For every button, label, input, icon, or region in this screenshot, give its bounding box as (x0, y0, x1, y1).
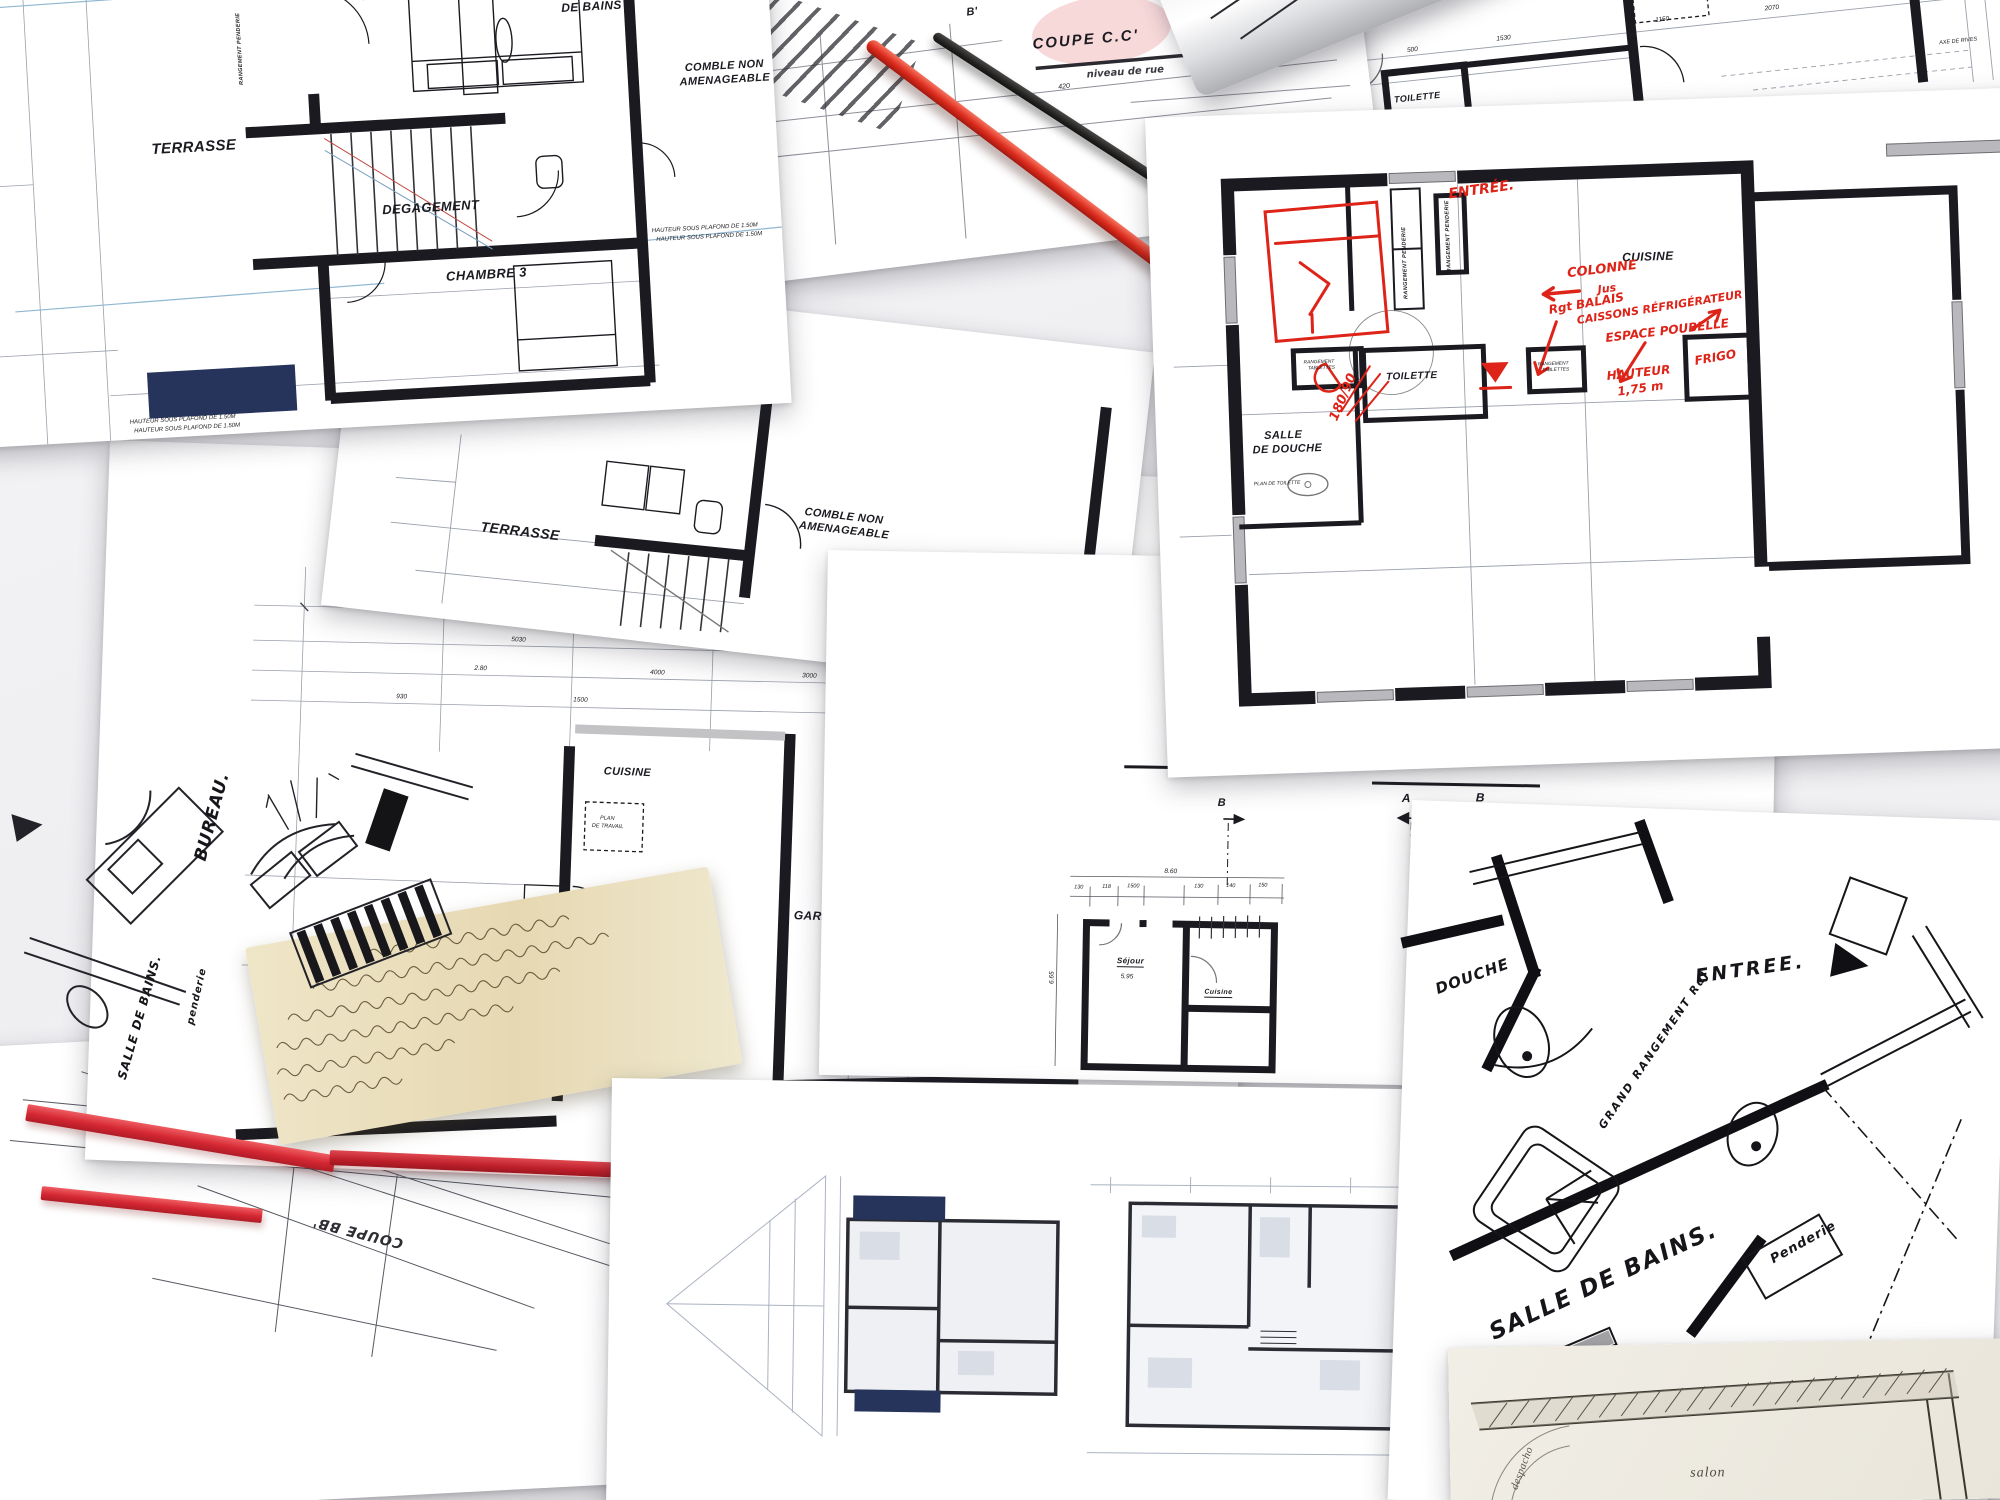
dim-420: 420 (1058, 83, 1071, 92)
coupe-dim-5: 150 (1258, 883, 1267, 889)
sheet-mini-plans (606, 1078, 1442, 1500)
dim-4000: 4000 (650, 669, 665, 677)
dim-1530-tr: 1530 (1496, 34, 1511, 43)
dim-3000: 3000 (802, 672, 817, 680)
dim-2070-tr: 2070 (1764, 4, 1779, 13)
coupe-dim-3: 130 (1194, 883, 1203, 889)
room-cuisine: CUISINE (604, 765, 652, 779)
room-toilette-red: TOILETTE (1386, 370, 1438, 383)
rgt-tablettes-a2: TABLETTES (1308, 366, 1335, 372)
coupe-dim-4: 140 (1226, 883, 1235, 889)
sheet-salon-old: salon despacho (1448, 1338, 2000, 1500)
sketch-stairs (290, 879, 451, 987)
dim-5030: 5030 (511, 636, 526, 644)
sheet-plan-etage: CHAMBRE 2 SALLE DE BAINS COMBLE NON AMEN… (0, 0, 792, 449)
sejour-dim: 5.95 (1121, 973, 1134, 980)
coupe-dim-2: 1500 (1127, 883, 1139, 889)
mini-navy-top (853, 1195, 945, 1220)
salle-de-douche-1: SALLE (1264, 429, 1302, 443)
coupe-dim-1: 118 (1102, 884, 1111, 890)
salle-de-douche-2: DE DOUCHE (1252, 442, 1322, 457)
marker-b-prime: B' (966, 5, 979, 19)
dim-1500: 1500 (573, 696, 588, 704)
marker-b-left: B (1218, 797, 1227, 809)
coupe-total-dim: 8.60 (1164, 868, 1177, 875)
mini-plans-linework (606, 1078, 1442, 1500)
room-sejour: Séjour (1117, 957, 1144, 967)
dim-1150-tr: 1150 (1655, 15, 1670, 24)
dim-500-tr: 500 (1407, 46, 1419, 54)
navy-block (147, 364, 297, 418)
etage-linework (0, 0, 792, 449)
mini-navy-bottom (854, 1389, 940, 1412)
coupe-dim-0: 130 (1074, 884, 1083, 890)
coupe-height-dim: 6.65 (1048, 971, 1055, 984)
marker-a: A (1402, 792, 1411, 806)
plan-travail-line2: DE TRAVAIL (592, 823, 624, 830)
rgt-tablettes-b2: TABLETTES (1542, 367, 1569, 373)
room-cuisine-coupe: Cuisine (1204, 989, 1232, 998)
blueprint-collage: COUPE BB' (0, 0, 2000, 1500)
plan-travail-line1: PLAN (600, 815, 615, 822)
dim-280: 2.80 (474, 665, 487, 673)
room-salon-old: salon (1690, 1465, 1726, 1481)
sheet-red-annotated-plan: RANGEMENT PENDERIE RANGEMENT PENDERIE CU… (1145, 87, 2000, 777)
